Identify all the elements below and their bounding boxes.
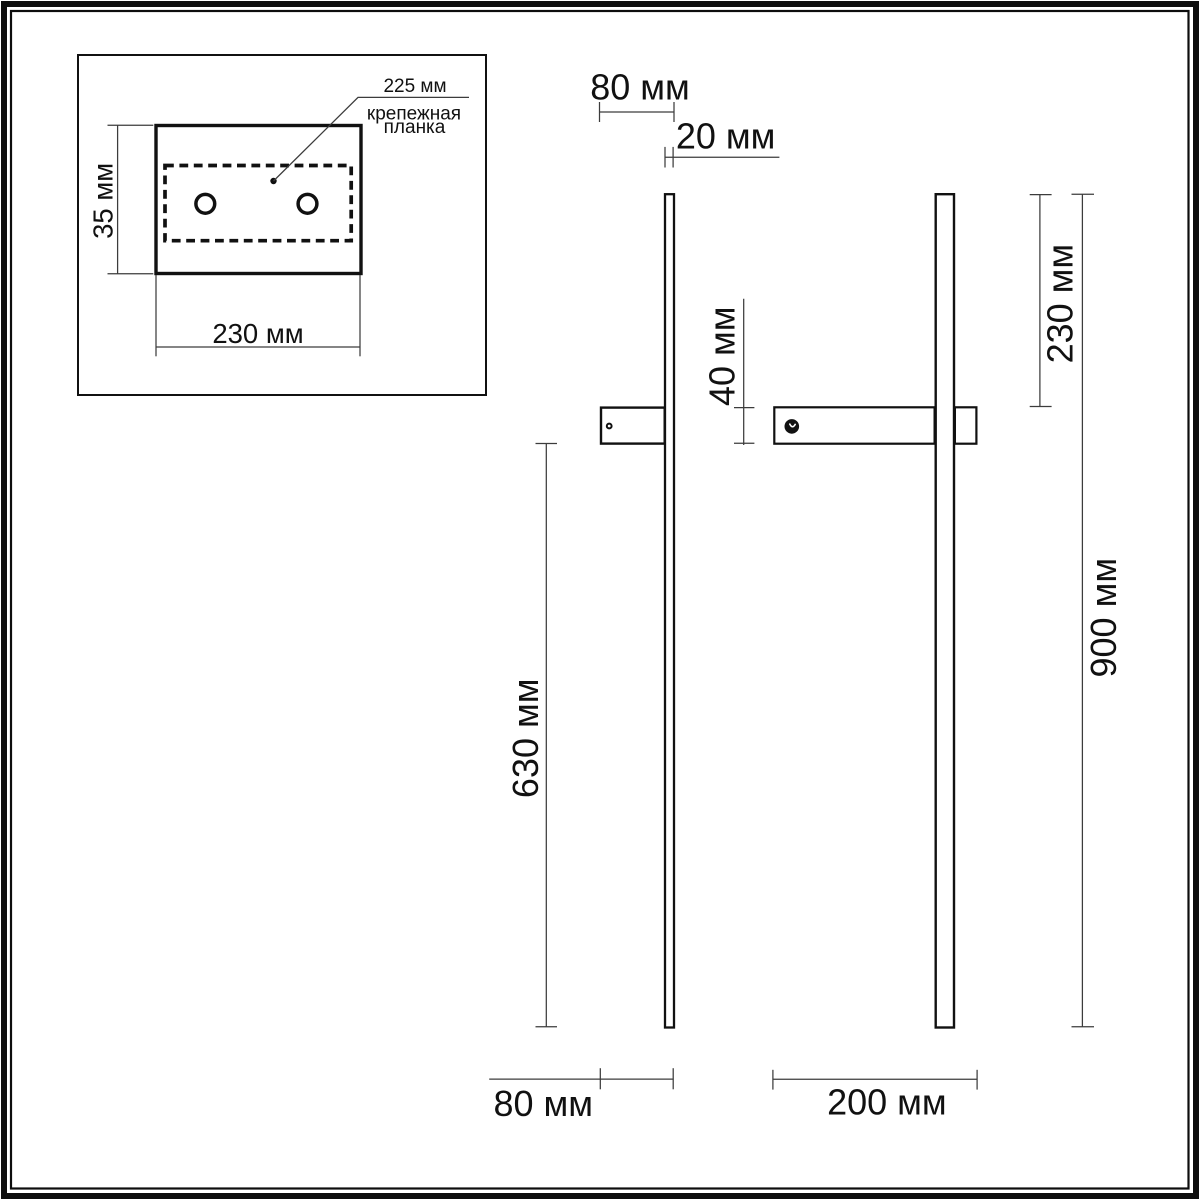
svg-text:планка: планка	[384, 117, 446, 138]
svg-text:225 мм: 225 мм	[383, 76, 446, 97]
svg-text:230 мм: 230 мм	[212, 318, 303, 349]
svg-text:230 мм: 230 мм	[1040, 244, 1081, 364]
svg-text:35 мм: 35 мм	[88, 163, 119, 239]
svg-text:80 мм: 80 мм	[494, 1083, 594, 1124]
svg-text:40 мм: 40 мм	[702, 307, 743, 407]
svg-text:80 мм: 80 мм	[590, 67, 690, 108]
svg-text:20 мм: 20 мм	[676, 115, 776, 156]
svg-text:200 мм: 200 мм	[827, 1082, 947, 1123]
svg-text:900 мм: 900 мм	[1083, 558, 1124, 678]
svg-text:630 мм: 630 мм	[505, 679, 546, 799]
